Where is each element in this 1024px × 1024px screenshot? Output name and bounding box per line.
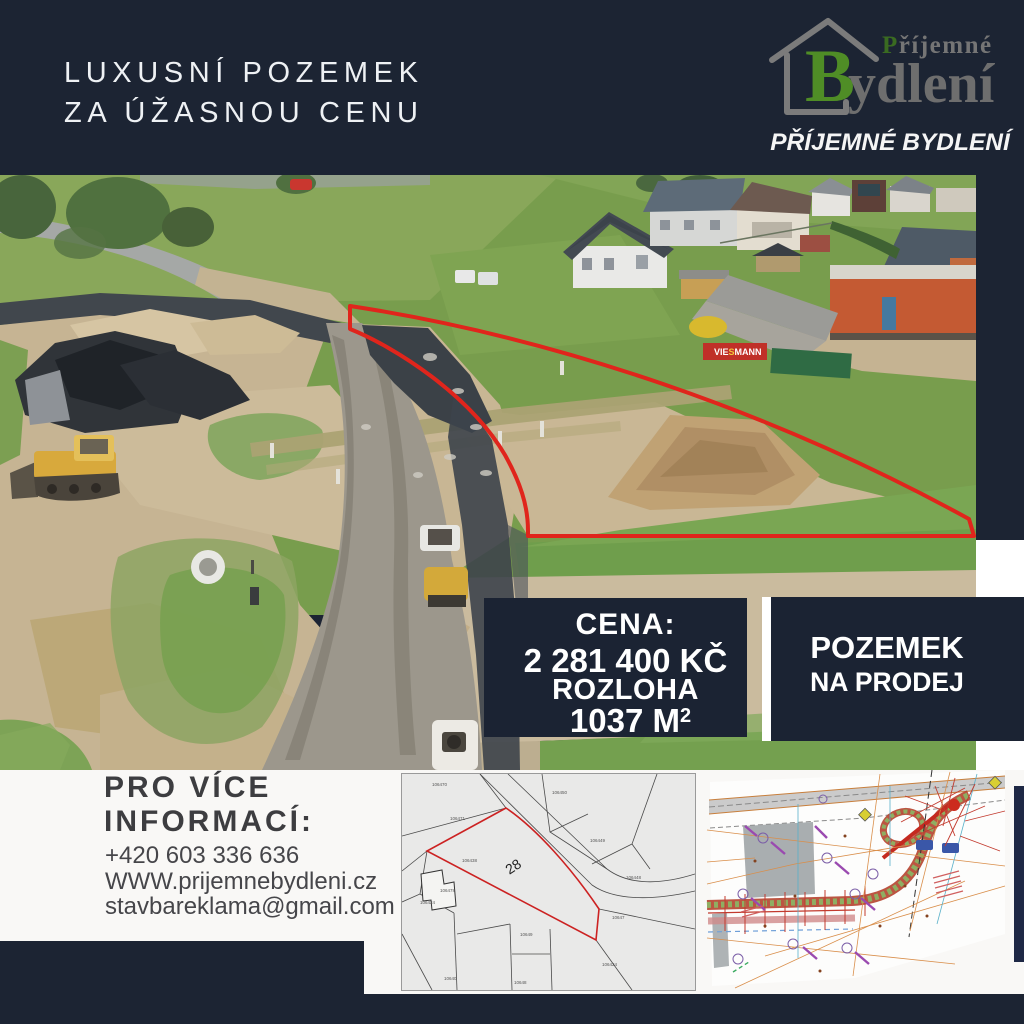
- svg-text:106449: 106449: [590, 838, 606, 843]
- svg-text:106448: 106448: [626, 875, 642, 880]
- svg-text:28: 28: [502, 855, 524, 877]
- svg-text:106438: 106438: [462, 858, 478, 863]
- svg-text:10647: 10647: [612, 915, 625, 920]
- svg-text:106450: 106450: [552, 790, 568, 795]
- svg-text:10640: 10640: [444, 976, 457, 981]
- svg-text:10648: 10648: [514, 980, 527, 985]
- svg-text:106471: 106471: [450, 816, 466, 821]
- svg-text:106424: 106424: [602, 962, 618, 967]
- svg-text:106424: 106424: [420, 900, 436, 905]
- svg-text:ydlení: ydlení: [848, 53, 996, 115]
- svg-text:10649: 10649: [520, 932, 533, 937]
- svg-text:106478: 106478: [440, 888, 456, 893]
- svg-text:VIESMANN: VIESMANN: [714, 347, 762, 357]
- svg-text:106470: 106470: [432, 782, 448, 787]
